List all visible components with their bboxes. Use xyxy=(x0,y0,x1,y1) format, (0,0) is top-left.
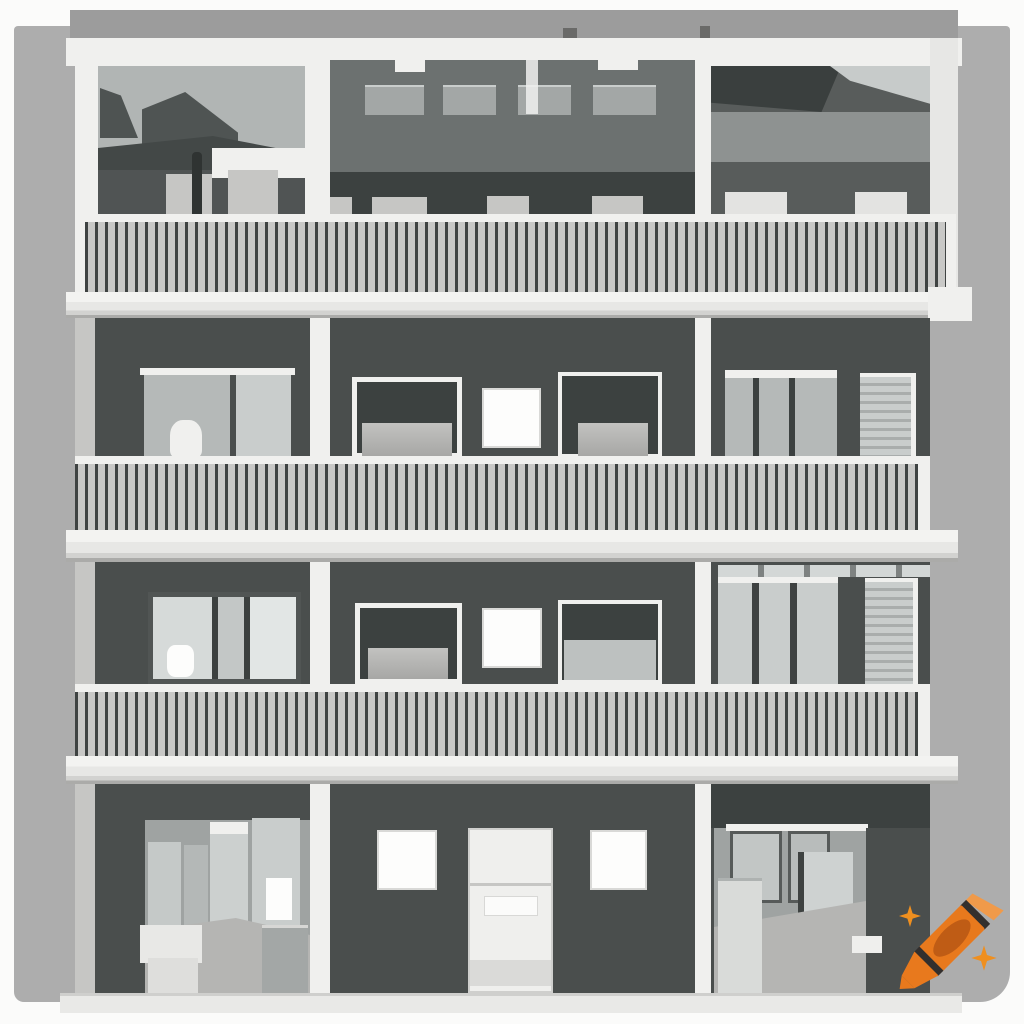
floor-slab xyxy=(66,530,958,562)
sparkle-icon xyxy=(971,945,996,970)
interior-fridge xyxy=(718,878,762,995)
balcony-railing xyxy=(75,692,930,756)
balcony-railing xyxy=(75,222,956,292)
floor-slab xyxy=(66,292,962,318)
floor-slab xyxy=(66,756,958,784)
window-mullion xyxy=(244,597,250,679)
glazing-mullion xyxy=(790,583,797,684)
interior-shelf xyxy=(262,925,308,995)
white-reflection xyxy=(266,878,292,920)
railing-end-post xyxy=(75,214,85,292)
clerestory-window xyxy=(365,85,424,115)
interior-window xyxy=(148,842,181,936)
roof-detail xyxy=(563,28,577,38)
door-transom-line xyxy=(470,883,551,886)
white-reflection xyxy=(167,645,194,677)
window-pane xyxy=(218,597,244,679)
interior-ceiling-shadow xyxy=(711,784,930,828)
window-sill xyxy=(368,648,448,679)
roofline-notch xyxy=(598,60,638,70)
balcony-railing xyxy=(75,464,930,530)
glazed-unit-head xyxy=(725,370,837,378)
railing-end-post xyxy=(946,214,956,292)
square-window xyxy=(590,830,647,890)
white-chair-shape xyxy=(170,420,202,458)
building-base-strip xyxy=(60,993,962,1013)
bright-square-window xyxy=(482,608,542,668)
open-blind xyxy=(564,640,656,680)
sparkle-icon xyxy=(899,905,921,927)
roof-detail xyxy=(700,26,710,38)
pilaster-left xyxy=(75,784,95,995)
interior-door xyxy=(210,822,248,934)
bottle-silhouette xyxy=(192,152,202,216)
door-panel xyxy=(484,896,538,916)
interior-table xyxy=(148,958,198,995)
glazed-unit-head xyxy=(726,824,868,831)
roofline-notch xyxy=(395,60,425,72)
window-with-blinds xyxy=(865,578,918,684)
penthouse-mullion xyxy=(526,60,538,114)
balcony-planter xyxy=(166,174,212,218)
column-center-right xyxy=(695,784,711,995)
slider-head-frame xyxy=(140,368,295,375)
railing-end-post xyxy=(918,684,930,756)
window-pane xyxy=(250,597,296,679)
window-sill xyxy=(362,423,452,456)
window-sill xyxy=(578,423,648,456)
window-with-blinds xyxy=(860,373,916,458)
glazing-mullion xyxy=(752,583,759,684)
balcony-planter xyxy=(228,170,278,218)
railing-end-post xyxy=(918,456,930,530)
square-window xyxy=(377,830,437,890)
crayon-icon xyxy=(888,886,1003,1001)
craiyon-crayon-logo xyxy=(880,872,1020,1012)
column-center-left xyxy=(310,784,330,995)
penthouse-body xyxy=(330,60,695,172)
door-kickplate xyxy=(470,960,551,986)
reflection-band xyxy=(711,112,930,162)
roof-parapet-band xyxy=(70,10,958,38)
artwork-canvas xyxy=(0,0,1024,1024)
clerestory-window xyxy=(593,85,656,115)
transom-strip xyxy=(718,565,930,577)
bright-square-window xyxy=(482,388,541,448)
slab-end-tab xyxy=(928,287,972,321)
clerestory-window xyxy=(443,85,496,115)
window-mullion xyxy=(212,597,218,679)
glazed-unit xyxy=(718,583,838,684)
small-sign xyxy=(852,936,882,953)
